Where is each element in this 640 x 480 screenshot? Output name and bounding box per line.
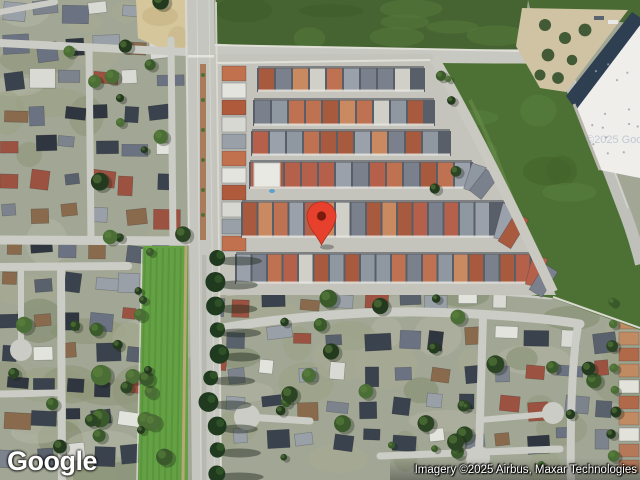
satellite-imagery: ©2025 Google [0, 0, 640, 480]
map-canvas[interactable]: ©2025 Google Google Imagery ©2025 Airbus… [0, 0, 640, 480]
greenbelt-strip [137, 246, 188, 480]
google-logo[interactable]: Google [7, 448, 97, 475]
marker-shadow [320, 244, 334, 249]
imagery-watermark: ©2025 Google [586, 134, 640, 146]
imagery-attribution: Imagery ©2025 Airbus, Maxar Technologies [415, 464, 637, 476]
location-marker-center [317, 211, 326, 220]
